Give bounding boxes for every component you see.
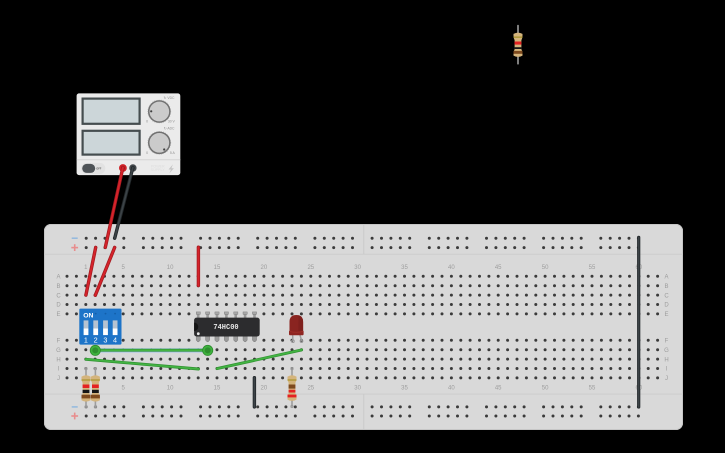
svg-text:D: D xyxy=(56,303,61,309)
svg-text:30: 30 xyxy=(354,265,361,271)
svg-text:OFF: OFF xyxy=(96,166,102,170)
svg-text:0: 0 xyxy=(146,119,148,123)
svg-text:40: 40 xyxy=(448,265,455,271)
svg-text:E: E xyxy=(664,312,668,318)
svg-text:15: 15 xyxy=(214,386,221,392)
svg-text:G: G xyxy=(56,348,61,354)
svg-text:0: 0 xyxy=(146,151,148,155)
svg-text:H: H xyxy=(664,357,668,363)
svg-text:F: F xyxy=(665,339,669,345)
svg-text:↻ VDC: ↻ VDC xyxy=(164,96,175,100)
svg-text:25: 25 xyxy=(307,386,314,392)
svg-text:25: 25 xyxy=(307,265,314,271)
svg-text:45: 45 xyxy=(495,265,502,271)
svg-text:ON: ON xyxy=(83,313,93,320)
svg-text:J: J xyxy=(57,376,60,382)
svg-text:20: 20 xyxy=(261,386,268,392)
svg-text:40: 40 xyxy=(448,386,455,392)
svg-text:↻ ADC: ↻ ADC xyxy=(164,127,175,131)
svg-text:35: 35 xyxy=(401,265,408,271)
svg-text:2: 2 xyxy=(94,335,98,344)
svg-text:30 V: 30 V xyxy=(168,119,176,123)
svg-text:20: 20 xyxy=(261,265,268,271)
svg-text:55: 55 xyxy=(589,386,596,392)
svg-text:4: 4 xyxy=(113,335,117,344)
svg-text:D: D xyxy=(664,303,669,309)
svg-text:50: 50 xyxy=(542,386,549,392)
svg-text:J: J xyxy=(665,376,668,382)
svg-text:A: A xyxy=(56,275,60,281)
svg-text:15: 15 xyxy=(214,265,221,271)
svg-text:30: 30 xyxy=(354,386,361,392)
svg-text:55: 55 xyxy=(589,265,596,271)
svg-text:35: 35 xyxy=(401,386,408,392)
svg-text:G: G xyxy=(664,348,669,354)
svg-text:45: 45 xyxy=(495,386,502,392)
svg-text:5 A: 5 A xyxy=(170,151,176,155)
svg-text:50: 50 xyxy=(542,265,549,271)
svg-text:C: C xyxy=(56,293,61,299)
svg-text:E: E xyxy=(56,312,60,318)
svg-text:SUPPLY: SUPPLY xyxy=(151,168,166,172)
svg-text:A: A xyxy=(664,275,668,281)
svg-text:B: B xyxy=(664,284,668,290)
svg-text:H: H xyxy=(56,357,60,363)
svg-text:F: F xyxy=(57,339,61,345)
svg-text:10: 10 xyxy=(167,386,174,392)
svg-text:B: B xyxy=(56,284,60,290)
svg-text:1: 1 xyxy=(84,335,88,344)
svg-text:C: C xyxy=(664,293,669,299)
svg-text:3: 3 xyxy=(103,335,107,344)
svg-text:74HC00: 74HC00 xyxy=(213,324,238,332)
svg-text:10: 10 xyxy=(167,265,174,271)
